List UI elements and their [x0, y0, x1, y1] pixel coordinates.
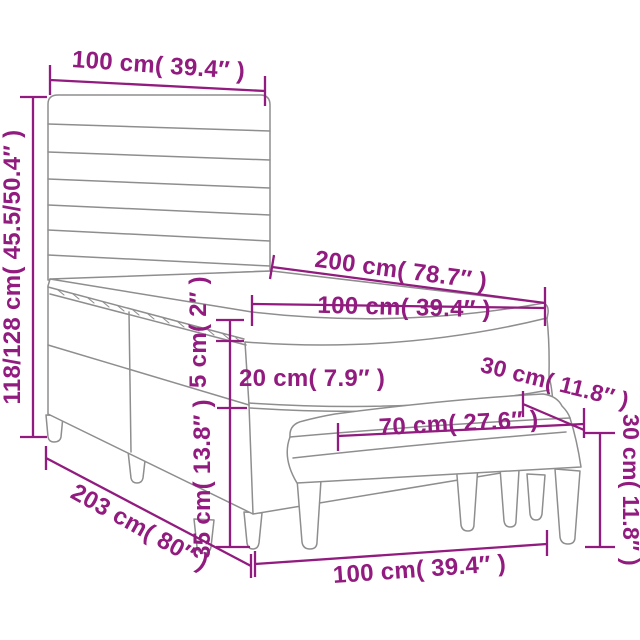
product-dimension-diagram: 100 cm( 39.4″ ) 118/128 cm( 45.5/50.4″ )… — [0, 0, 640, 640]
bench-leg — [555, 469, 580, 544]
bed-leg — [244, 512, 262, 549]
dim-line-bench-height — [585, 433, 615, 547]
bench-leg — [297, 479, 321, 549]
bed-leg — [527, 474, 545, 520]
bench-leg — [500, 468, 519, 527]
label-bench-height: 30 cm( 11.8″ ) — [618, 414, 640, 566]
label-mattress-thickness: 20 cm( 7.9″ ) — [239, 365, 385, 392]
label-topper-thickness: 5 cm( 2″ ) — [185, 276, 212, 388]
label-base-height: 35 cm( 13.8″ ) — [189, 399, 216, 559]
label-headboard-width: 100 cm( 39.4″ ) — [71, 46, 246, 85]
headboard — [48, 95, 270, 280]
label-overall-height: 118/128 cm( 45.5/50.4″ ) — [0, 130, 26, 405]
diagram-svg: 100 cm( 39.4″ ) 118/128 cm( 45.5/50.4″ )… — [0, 0, 640, 640]
label-mattress-width: 100 cm( 39.4″ ) — [317, 292, 491, 324]
